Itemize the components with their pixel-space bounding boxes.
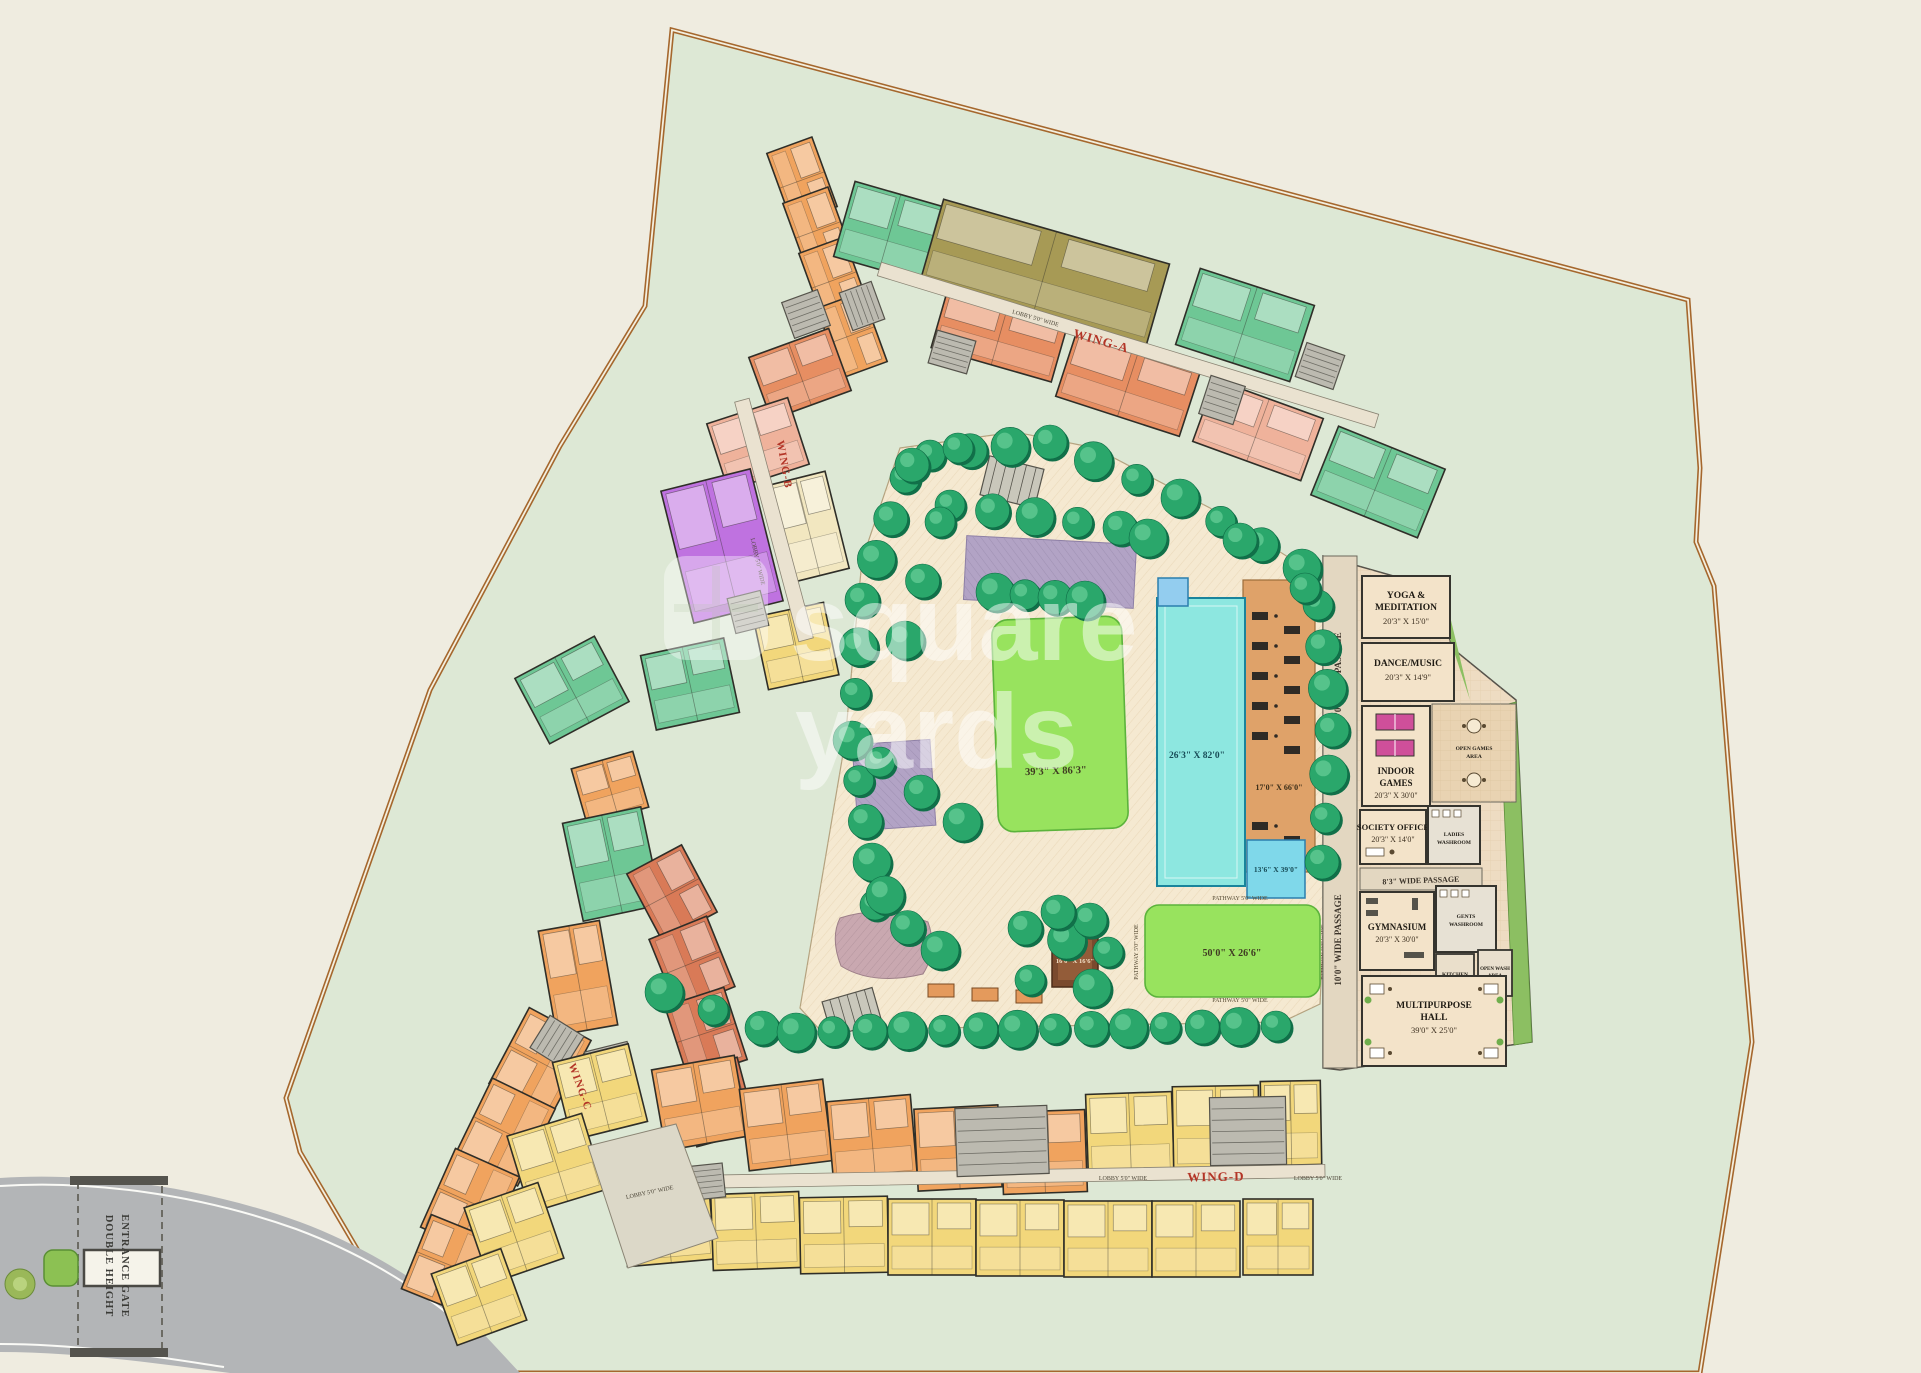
indoor-games-label-2: GAMES [1379, 778, 1412, 788]
building-unit [1152, 1201, 1240, 1277]
passage-vertical-label-2: 10'0" WIDE PASSAGE [1333, 894, 1343, 985]
yoga-label-1: YOGA & [1387, 591, 1425, 601]
stair-lift-core [955, 1105, 1049, 1176]
open-games-label-1: OPEN GAMES [1456, 746, 1493, 752]
pool-lounger [1252, 642, 1268, 650]
pathway-label-s: PATHWAY 5'0" WIDE [1212, 998, 1268, 1004]
pool-lounger [1284, 716, 1300, 724]
indoor-games-label-1: INDOOR [1377, 766, 1415, 776]
open-wash-label-1: OPEN WASH [1480, 967, 1510, 972]
gents-washroom-label-1: GENTS [1457, 914, 1476, 920]
watermark-text-2: yards [795, 673, 1078, 791]
dance-label: DANCE/MUSIC [1374, 659, 1442, 669]
lobby-label: LOBBY 5'0" WIDE [1294, 1176, 1343, 1182]
pool-lounger [1252, 672, 1268, 680]
ladies-washroom-label-1: LADIES [1444, 832, 1464, 838]
pool-deck-dim: 17'0" X 66'0" [1255, 783, 1302, 792]
building-unit [1243, 1199, 1313, 1275]
open-games-label-2: AREA [1466, 754, 1482, 760]
pool-lounger [1284, 626, 1300, 634]
building-unit [1064, 1201, 1152, 1277]
pool-dim: 26'3" X 82'0" [1169, 751, 1225, 761]
building-unit [799, 1196, 888, 1274]
gate-tree-crown [13, 1277, 27, 1291]
pool-lounger [1284, 686, 1300, 694]
building-unit [827, 1094, 918, 1183]
pool-lounger [1252, 702, 1268, 710]
open-games-area: OPEN GAMES AREA [1432, 704, 1516, 802]
pathway-label-n: PATHWAY 5'0" WIDE [1212, 896, 1268, 902]
hall-label-2: HALL [1421, 1013, 1448, 1023]
dance-dim: 20'3" X 14'9" [1385, 672, 1431, 682]
building-unit [739, 1079, 832, 1171]
pool-lounger [1252, 822, 1268, 830]
swimming-pool [1157, 598, 1245, 886]
yoga-label-2: MEDITATION [1375, 603, 1437, 613]
entrance-gate-label-line2: ENTRANCE GATE [119, 1214, 130, 1318]
hall-dim: 39'0" X 25'0" [1411, 1025, 1457, 1035]
office-desk [1366, 848, 1384, 856]
yoga-dim: 20'3" X 15'0" [1383, 616, 1429, 626]
gents-washroom: GENTS WASHROOM [1436, 886, 1496, 952]
building-unit [711, 1191, 802, 1270]
ladies-washroom-label-2: WASHROOM [1437, 840, 1472, 846]
society-office-label: SOCIETY OFFICE [1357, 822, 1430, 832]
stair-lift-core [1209, 1096, 1286, 1165]
pool-lounger [1252, 732, 1268, 740]
society-office-dim: 20'3" X 14'0" [1371, 835, 1414, 844]
site-plan-canvas: ENTRANCE GATE DOUBLE HEIGHT 39'3" [0, 0, 1921, 1373]
pathway-label-w: PATHWAY 5'0" WIDE [1134, 924, 1140, 980]
kids-pool-dim: 13'6" X 39'0" [1254, 865, 1298, 874]
wing-d-label: WING-D [1187, 1169, 1245, 1185]
lobby-label: LOBBY 5'0" WIDE [1099, 1176, 1148, 1182]
building-unit [976, 1200, 1064, 1276]
south-lawn-dim: 50'0" X 26'6" [1203, 948, 1262, 959]
pool-lounger [1252, 612, 1268, 620]
watermark-text-1: square [790, 565, 1138, 683]
gym-label: GYMNASIUM [1368, 922, 1427, 932]
ladies-washroom: LADIES WASHROOM [1428, 806, 1480, 864]
indoor-games-dim: 20'3" X 30'0" [1374, 791, 1417, 800]
building-unit [1086, 1092, 1175, 1179]
entrance-gate-label-line1: DOUBLE HEIGHT [103, 1215, 114, 1318]
pool-lounger [1284, 656, 1300, 664]
plunge-pool [1158, 578, 1188, 606]
hall-label-1: MULTIPURPOSE [1396, 1001, 1472, 1011]
gents-washroom-label-2: WASHROOM [1449, 922, 1484, 928]
building-unit [888, 1199, 976, 1275]
pool-lounger [1284, 746, 1300, 754]
gate-shrub [44, 1250, 78, 1286]
gym-dim: 20'3" X 30'0" [1375, 935, 1418, 944]
